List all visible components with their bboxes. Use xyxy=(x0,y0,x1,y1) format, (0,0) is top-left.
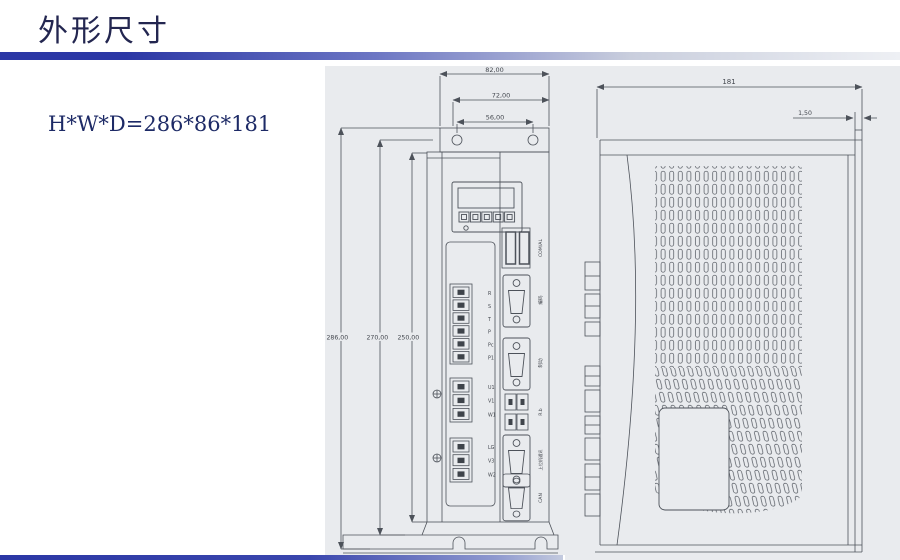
connector-label: CAN xyxy=(538,493,544,503)
dim-label-plate-150: 1,50 xyxy=(798,110,812,117)
card-slot-connector xyxy=(502,228,530,268)
dsub-connector xyxy=(503,435,530,487)
title-accent-bar xyxy=(0,52,900,60)
terminal-label: Pc xyxy=(488,343,494,349)
dim-label-hole-pitch: 56,00 xyxy=(486,114,505,122)
connector-label: 编码 xyxy=(537,295,544,305)
terminal-label: T xyxy=(487,317,491,323)
connector-label: 上位机通讯 xyxy=(537,449,544,471)
dim-label-height-270: 270,00 xyxy=(367,335,389,342)
terminal-label: V3 xyxy=(488,459,494,465)
connector-column: COM/AL 编码 制动 R.b 上位机通讯 CAN xyxy=(502,228,544,521)
small-terminal-pairs xyxy=(505,394,528,430)
footer-accent-bar xyxy=(0,555,563,560)
dsub-connector xyxy=(503,338,530,390)
terminal-label: U1 xyxy=(488,385,495,391)
screw-icon xyxy=(433,390,441,462)
dsub-connector-can xyxy=(503,474,530,521)
front-view-linework xyxy=(341,74,558,553)
terminal-label: R xyxy=(488,291,492,297)
dim-label-width-82: 82,00 xyxy=(485,66,504,74)
terminal-label: S xyxy=(488,304,491,310)
terminal-label: V1 xyxy=(488,399,494,405)
nameplate xyxy=(659,408,729,510)
dsub-connector xyxy=(503,275,530,327)
dim-label-height-286: 286,00 xyxy=(327,335,349,342)
connector-label: COM/AL xyxy=(538,239,544,257)
front-view-drawing: R S T P Pc P1 U1 V1 xyxy=(325,66,593,556)
keypad-display xyxy=(452,182,522,232)
terminal-label: P1 xyxy=(488,356,494,362)
dim-label-width-72: 72,00 xyxy=(492,92,511,100)
dim-label-height-250: 250,00 xyxy=(398,335,420,342)
terminal-label: W2 xyxy=(488,472,496,478)
terminal-enclosure xyxy=(446,242,495,506)
connector-label: 制动 xyxy=(537,358,544,368)
dim-label-depth-181: 181 xyxy=(722,78,735,86)
terminal-label: W1 xyxy=(488,412,496,418)
side-view-drawing: 181 1,50 xyxy=(565,66,900,560)
dimension-note: H*W*D=286*86*181 xyxy=(48,112,271,136)
connector-label: R.b xyxy=(538,408,544,415)
terminal-label: LG xyxy=(488,445,495,451)
terminal-label: P xyxy=(488,330,491,336)
page-title: 外形尺寸 xyxy=(38,6,170,50)
power-terminal-block: R S T P Pc P1 xyxy=(450,284,494,364)
aux-terminal-block: LG V3 W2 xyxy=(450,438,496,482)
slide: 外形尺寸 H*W*D=286*86*181 xyxy=(0,0,900,560)
motor-terminal-block: U1 V1 W1 xyxy=(450,378,496,422)
